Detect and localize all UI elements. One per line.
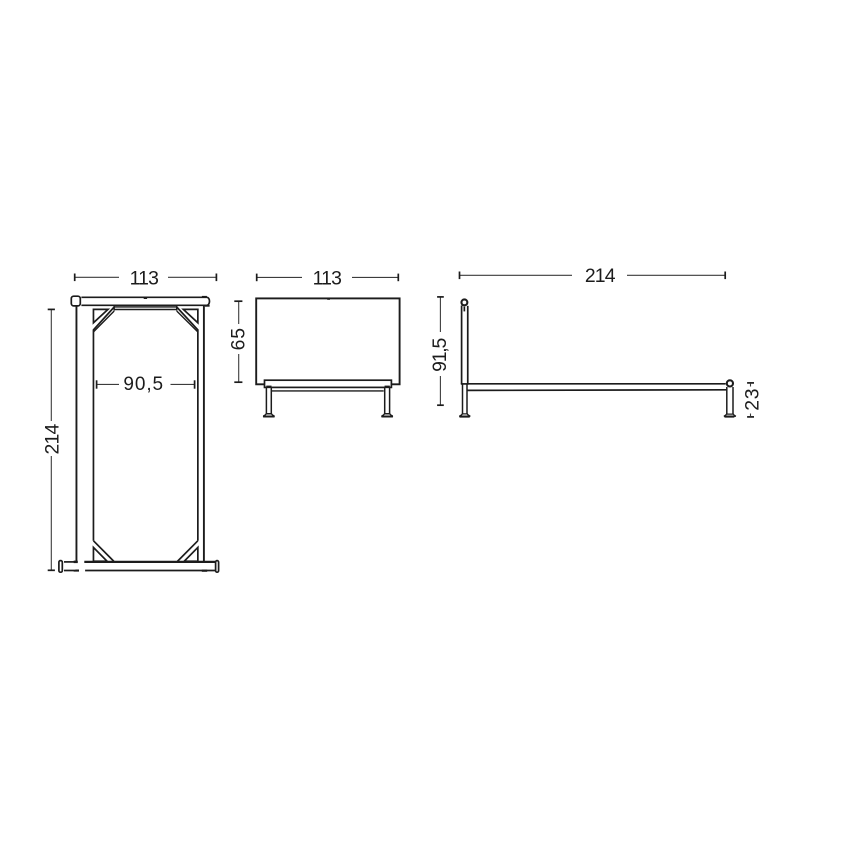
svg-text:91,5: 91,5: [429, 339, 451, 372]
svg-text:214: 214: [42, 424, 64, 455]
svg-text:113: 113: [130, 267, 159, 289]
svg-text:90,5: 90,5: [123, 374, 164, 395]
svg-text:113: 113: [313, 267, 342, 289]
svg-text:65: 65: [228, 327, 250, 350]
svg-text:23: 23: [742, 388, 764, 411]
svg-text:214: 214: [585, 265, 616, 287]
